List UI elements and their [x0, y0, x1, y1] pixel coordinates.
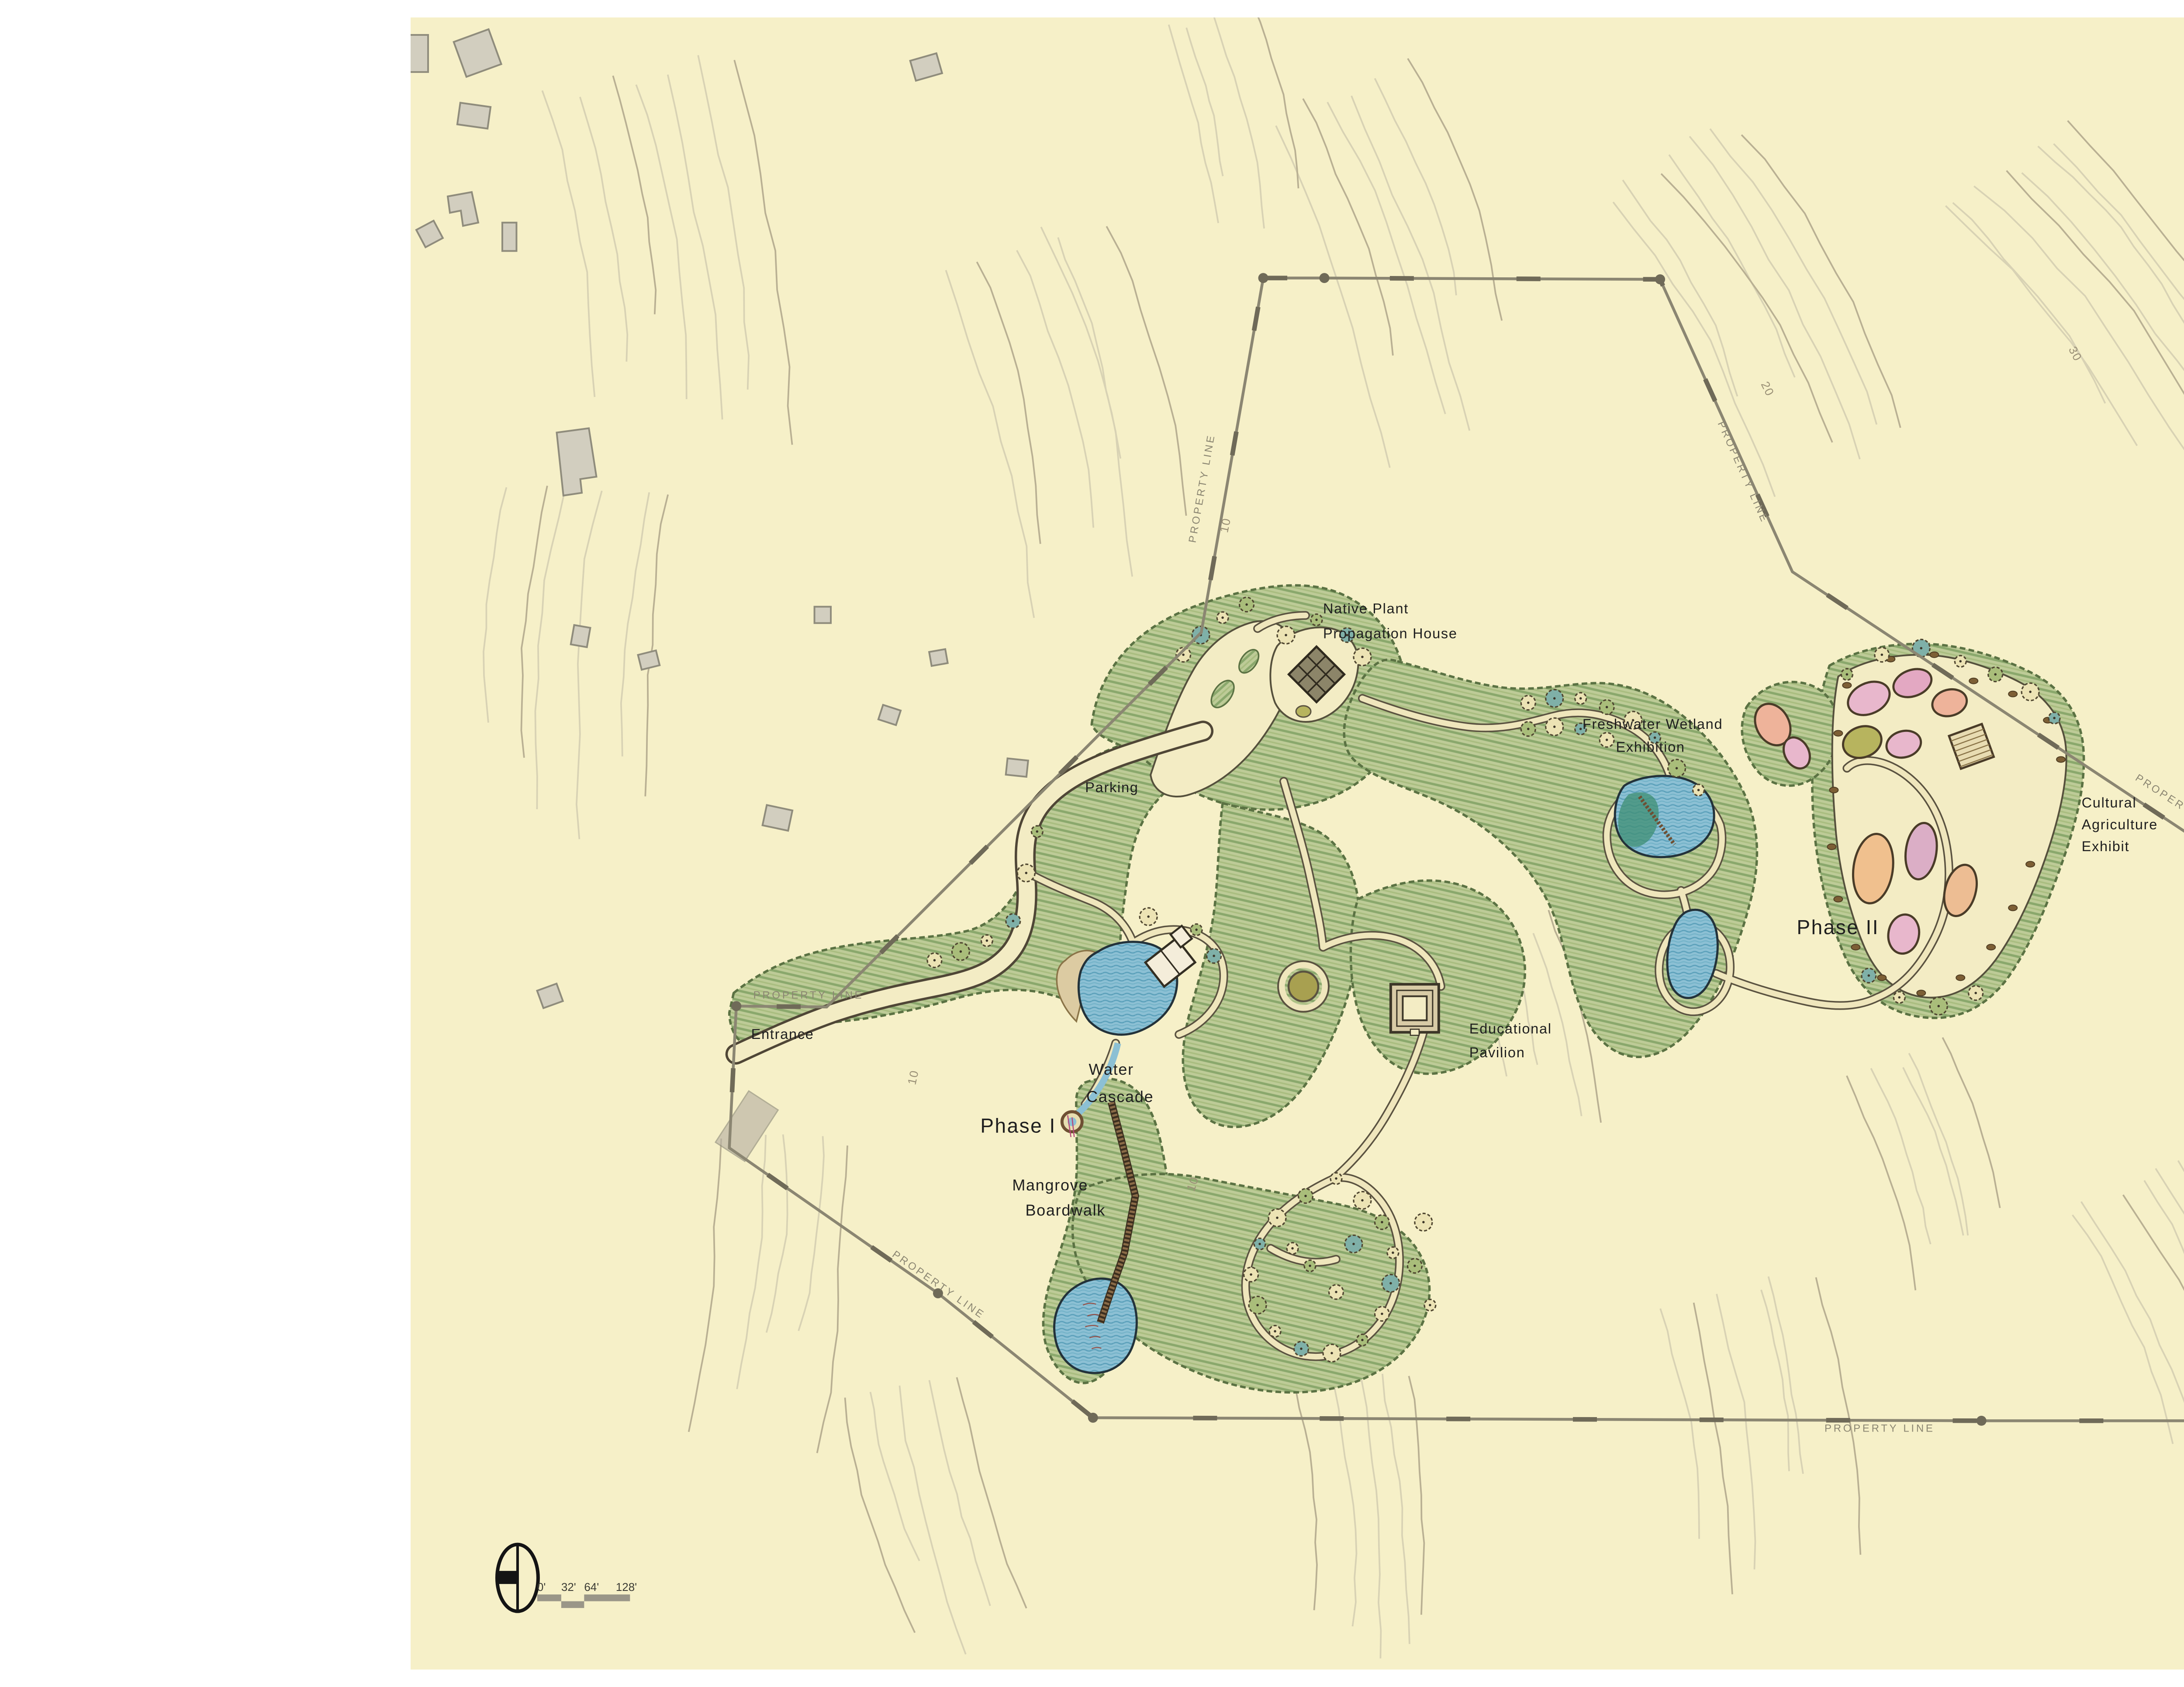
scale-segment — [561, 1601, 584, 1608]
tree-canopy — [1287, 1243, 1298, 1254]
tree-canopy — [1955, 655, 1966, 667]
tree-canopy — [1191, 924, 1202, 935]
tree-canopy — [1240, 597, 1254, 612]
tree-canopy — [1329, 1285, 1343, 1299]
tree-canopy — [1600, 733, 1614, 747]
tree-canopy — [1600, 700, 1614, 714]
tree-canopy — [1031, 826, 1043, 837]
tree-canopy — [1930, 997, 1947, 1015]
label-freshwater-line2: Exhibition — [1616, 739, 1685, 755]
tree-canopy — [1841, 669, 1852, 680]
tree-canopy — [1249, 1296, 1266, 1314]
tree-canopy — [1006, 914, 1020, 928]
tree-canopy — [1875, 648, 1889, 662]
building — [502, 223, 516, 251]
tree-canopy — [1017, 864, 1035, 882]
tree-canopy — [1862, 968, 1876, 983]
tree-canopy — [1375, 1215, 1389, 1229]
tree-canopy — [1268, 1209, 1286, 1227]
tree-canopy — [1294, 1342, 1309, 1356]
tree-canopy — [1323, 1344, 1341, 1362]
educational-pavilion-structure — [1391, 984, 1439, 1035]
tree-canopy — [1546, 690, 1563, 707]
tree-canopy — [1546, 718, 1563, 735]
tree-canopy — [1969, 986, 1983, 1000]
tree-canopy — [1382, 1274, 1400, 1292]
building — [571, 625, 591, 647]
tree-canopy — [1415, 1214, 1432, 1231]
tree-canopy — [1375, 1307, 1389, 1321]
tree-canopy — [1269, 1325, 1281, 1337]
building — [457, 103, 491, 128]
scale-tick-64: 64' — [584, 1580, 599, 1594]
tree-canopy — [1244, 1267, 1258, 1282]
tree-canopy — [981, 935, 992, 946]
tree-canopy — [1693, 784, 1704, 796]
tree-canopy — [1304, 1260, 1316, 1272]
building — [1006, 759, 1028, 777]
tree-canopy — [1521, 696, 1535, 710]
tree-canopy — [952, 943, 969, 960]
tree-canopy — [1277, 626, 1295, 644]
building — [638, 650, 660, 669]
building — [408, 35, 428, 72]
tree-canopy — [1357, 1334, 1368, 1345]
tree-canopy — [1254, 1239, 1265, 1250]
label-freshwater-line1: Freshwater Wetland — [1583, 716, 1723, 732]
master-plan-drawing: PROPERTY LINE PROPERTY LINE PROPERTY LIN… — [0, 0, 2184, 1687]
tree-canopy — [1387, 1247, 1399, 1259]
tree-canopy — [1299, 1189, 1313, 1203]
tree-canopy — [927, 953, 942, 967]
label-mangrove-line2: Boardwalk — [1025, 1201, 1106, 1219]
site-plan-sheet: PROPERTY LINE PROPERTY LINE PROPERTY LIN… — [0, 0, 2184, 1687]
label-cultural-line1: Cultural — [2082, 795, 2137, 811]
tree-canopy — [1521, 722, 1535, 736]
building — [929, 649, 948, 666]
tree-canopy — [1311, 614, 1322, 625]
tree-canopy — [2022, 683, 2039, 700]
tree-canopy — [2049, 712, 2060, 724]
tree-canopy — [1407, 1259, 1422, 1273]
tree-canopy — [1354, 1192, 1371, 1209]
scale-tick-0: 0' — [537, 1580, 546, 1594]
scale-tick-32: 32' — [561, 1580, 576, 1594]
label-mangrove-line1: Mangrove — [1012, 1176, 1088, 1194]
scale-tick-128: 128' — [616, 1580, 637, 1594]
label-entrance: Entrance — [751, 1026, 814, 1042]
label-native-plant-line1: Native Plant — [1323, 600, 1409, 616]
label-parking: Parking — [1085, 780, 1138, 795]
label-cultural-line2: Agriculture — [2082, 817, 2158, 832]
tree-canopy — [1140, 908, 1157, 925]
building — [815, 607, 831, 623]
property-line-label: PROPERTY LINE — [753, 989, 864, 1001]
label-water-cascade-line1: Water — [1089, 1060, 1134, 1078]
label-educational-line2: Pavilion — [1469, 1045, 1525, 1060]
propagation-pond — [1296, 706, 1311, 717]
scale-segment — [584, 1594, 630, 1601]
tree-canopy — [1424, 1299, 1436, 1311]
label-phase1: Phase I — [980, 1114, 1056, 1137]
scale-segment — [537, 1594, 561, 1601]
tree-canopy — [1575, 693, 1586, 704]
label-cultural-line3: Exhibit — [2082, 838, 2130, 854]
circle-garden-lawn — [1289, 972, 1318, 1001]
label-educational-line1: Educational — [1469, 1021, 1552, 1036]
tree-canopy — [1345, 1235, 1362, 1253]
tree-canopy — [1988, 667, 2003, 682]
property-line-label: PROPERTY LINE — [1825, 1422, 1935, 1434]
building — [763, 805, 793, 831]
tree-canopy — [1354, 648, 1371, 666]
tree-canopy — [1207, 949, 1221, 963]
tree-canopy — [1217, 612, 1228, 623]
tree-canopy — [1330, 1173, 1342, 1184]
label-phase2: Phase II — [1797, 916, 1879, 938]
tree-canopy — [1894, 992, 1905, 1003]
label-water-cascade-line2: Cascade — [1086, 1088, 1154, 1106]
label-native-plant-line2: Propagation House — [1323, 626, 1458, 642]
tree-canopy — [1668, 759, 1686, 777]
